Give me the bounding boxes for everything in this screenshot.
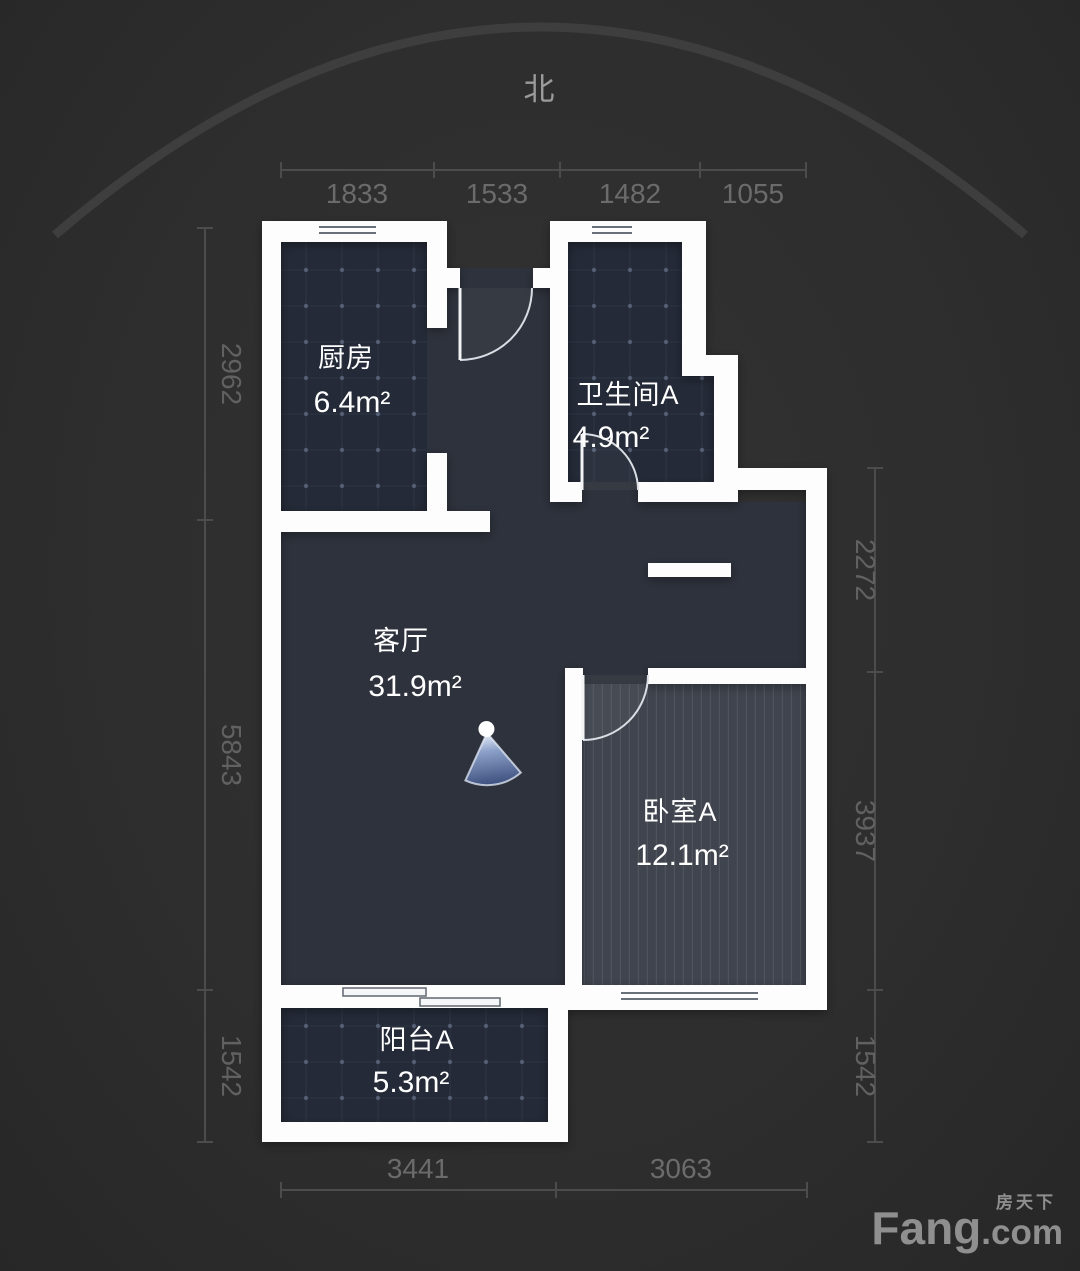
dim-left-1: 2962 xyxy=(216,343,247,405)
bedroom-name: 卧室A xyxy=(642,797,717,827)
balcony-name: 阳台A xyxy=(379,1025,454,1055)
fang-watermark: 房天下 Fang.com xyxy=(871,1192,1063,1254)
living-floor xyxy=(281,532,565,985)
balcony-area: 5.3m² xyxy=(373,1066,450,1099)
kitchen-area: 6.4m² xyxy=(314,386,391,419)
wall-bedroom-bottom xyxy=(565,985,827,1010)
wall-kitchen-right-upper xyxy=(427,242,447,328)
bedroom-area: 12.1m² xyxy=(635,839,728,872)
wall-left-outer xyxy=(262,221,281,1142)
compass: 北 xyxy=(55,27,1025,235)
dim-left-3: 1542 xyxy=(216,1035,247,1097)
hallway-floor xyxy=(550,502,806,668)
dim-bottom-1: 3441 xyxy=(387,1153,449,1184)
dim-top-2: 1533 xyxy=(466,178,528,209)
wall-bathroom-right-upper xyxy=(682,242,706,355)
entry-doorway-threshold xyxy=(460,268,533,288)
living-name: 客厅 xyxy=(373,626,429,656)
wall-entry-top-left xyxy=(447,268,460,288)
kitchen-name: 厨房 xyxy=(318,343,374,373)
bathroom-floor-upper xyxy=(568,242,682,376)
wall-bathroom-top xyxy=(550,221,706,242)
wall-kitchen-right-lower xyxy=(427,453,447,511)
wall-bathroom-bottom-left xyxy=(550,482,582,502)
dim-right-3: 1542 xyxy=(850,1035,881,1097)
wall-kitchen-bottom xyxy=(262,511,490,532)
wall-bedroom-left xyxy=(565,668,582,1010)
dim-left-2: 5843 xyxy=(216,724,247,786)
wall-balcony-bottom xyxy=(262,1122,568,1142)
wall-bedroom-top-right xyxy=(648,668,827,684)
north-label: 北 xyxy=(524,72,557,107)
living-area: 31.9m² xyxy=(368,670,461,703)
compass-arc xyxy=(55,27,1025,235)
wall-right-outer xyxy=(806,468,827,1010)
floorplan-drawing: 北 xyxy=(0,0,1080,1271)
wall-bathroom-left xyxy=(550,221,568,502)
fang-watermark-cn: 房天下 xyxy=(996,1192,1056,1212)
floorplan-viewport: 北 xyxy=(0,0,1080,1271)
wall-stub-hallway xyxy=(648,563,731,577)
kitchen-floor xyxy=(281,242,427,511)
dim-right-1: 2272 xyxy=(850,539,881,601)
dim-bottom-2: 3063 xyxy=(650,1153,712,1184)
dim-top-1: 1833 xyxy=(326,178,388,209)
wall-kitchen-top xyxy=(262,221,447,242)
dim-right-2: 3937 xyxy=(850,800,881,862)
dim-top-4: 1055 xyxy=(722,178,784,209)
wall-balcony-right xyxy=(548,985,568,1142)
bathroom-name: 卫生间A xyxy=(576,380,679,410)
kitchen-doorway-threshold xyxy=(427,328,447,453)
wall-entry-top-right xyxy=(533,268,550,288)
bathroom-area: 4.9m² xyxy=(573,421,650,454)
dim-top-3: 1482 xyxy=(599,178,661,209)
